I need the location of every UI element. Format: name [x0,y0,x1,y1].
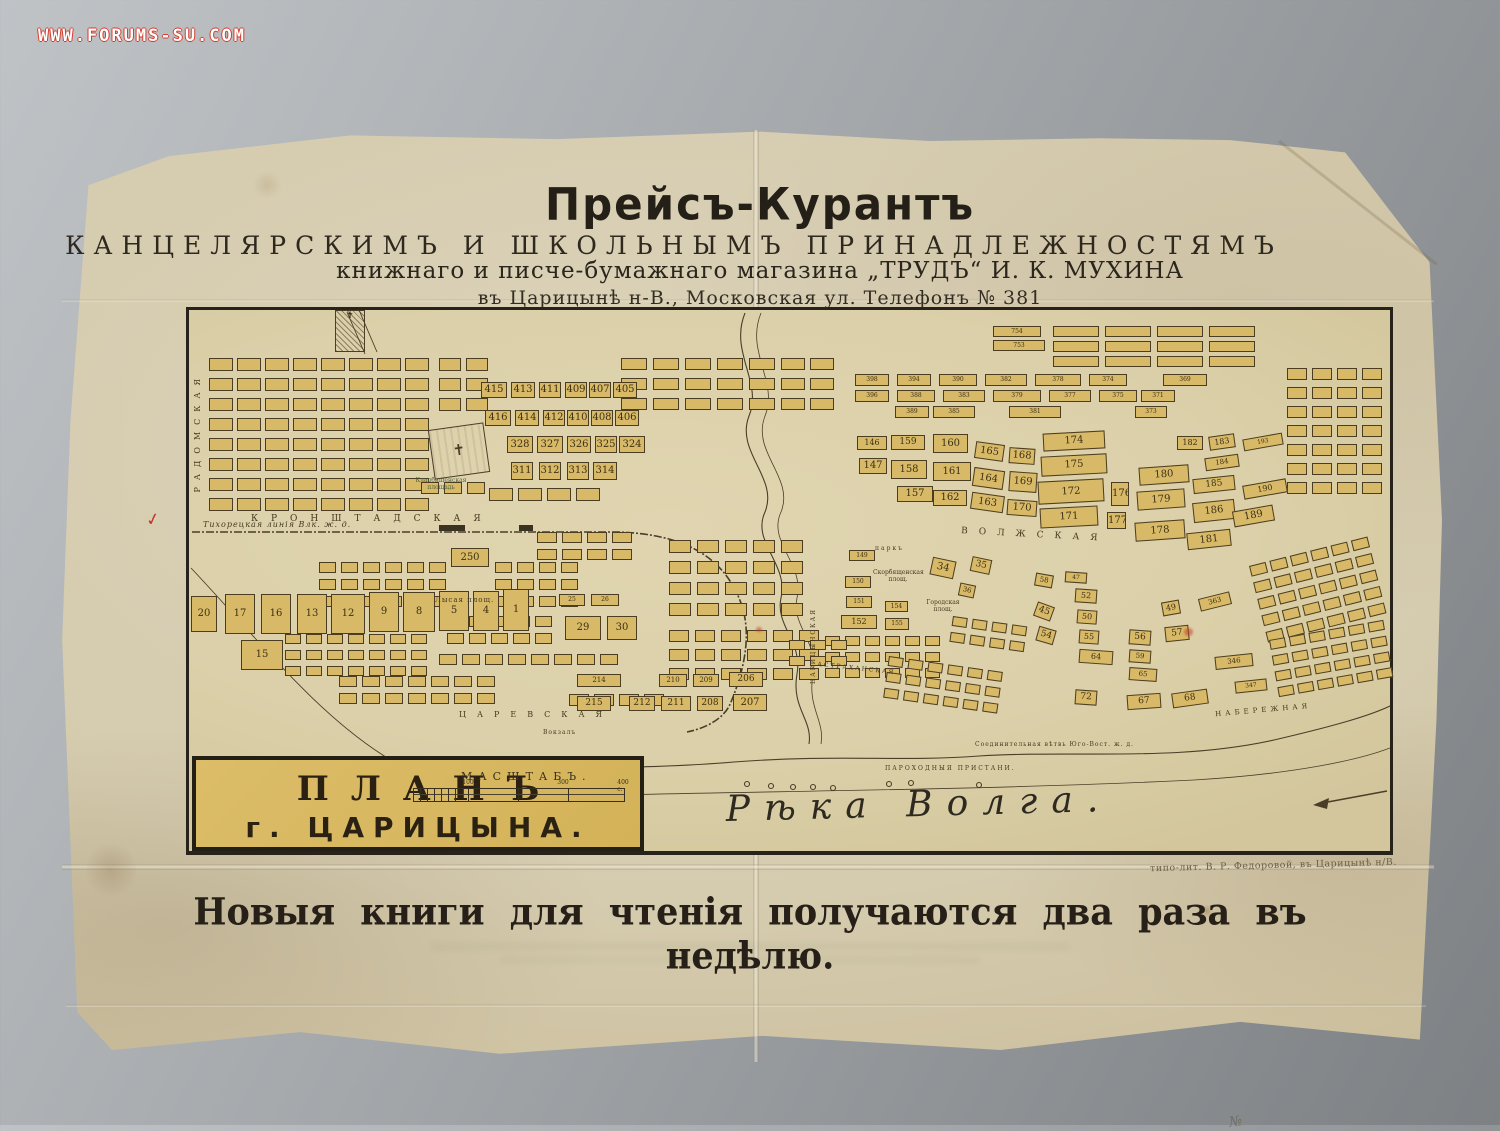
city-block: 186 [1192,499,1236,523]
city-block [576,488,600,501]
city-block [697,603,719,616]
city-block [321,358,345,371]
city-block [209,458,233,471]
city-block [831,640,847,650]
city-block [1287,368,1307,380]
city-block [721,649,741,661]
city-block: 58 [1034,573,1054,589]
city-block [1337,387,1357,399]
city-block: 161 [933,462,971,481]
city-block [1362,463,1382,475]
city-block [1318,580,1337,595]
city-block: 182 [1177,436,1203,450]
city-block [562,532,582,543]
city-block [321,438,345,451]
city-block [439,654,457,665]
city-block: 163 [970,492,1005,513]
city-block [749,358,775,370]
city-block [209,498,233,511]
street-label: Скорбященская площ. [873,570,923,584]
city-block [1157,356,1203,367]
city-block [348,634,364,644]
city-block [439,358,461,371]
street-label: ЦАРЕВСКАЯ [459,710,613,719]
city-block [477,693,495,704]
city-block [265,418,289,431]
city-block: 176 [1111,482,1129,506]
city-block [1337,425,1357,437]
city-block [1355,553,1374,568]
city-block [454,676,472,687]
city-block [753,603,775,616]
city-block [377,498,401,511]
city-block: 385 [933,406,975,418]
city-block: 373 [1135,406,1167,418]
city-block [1312,444,1332,456]
city-block [265,498,289,511]
city-block [952,616,968,628]
city-block [405,458,429,471]
city-block [943,696,959,708]
city-block [991,622,1007,634]
city-block [319,579,336,590]
city-block: 45 [1033,601,1055,621]
city-block [293,438,317,451]
scale-label: МАСШТАБЪ. [461,770,592,783]
city-block: 12 [331,594,365,634]
scale-tick [413,789,414,801]
city-block [653,398,679,410]
street-label: ЦАРИЦЫНСКАЯ [811,608,818,684]
city-block [377,478,401,491]
city-block: 152 [841,615,877,629]
city-block: 416 [485,410,511,426]
city-block [927,662,943,674]
city-block: 210 [659,674,687,687]
city-block [982,702,998,714]
city-block: 396 [855,390,889,402]
city-block [1312,368,1332,380]
header-subtitle-2: книжнаго и писче-бумажнаго магазина „ТРУ… [100,258,1420,284]
city-block [989,637,1005,649]
city-block [466,358,488,371]
city-block [1337,463,1357,475]
city-block: 379 [993,390,1041,402]
city-block [1053,341,1099,352]
city-block [411,634,427,644]
city-block: 363 [1198,591,1232,611]
city-block [669,603,691,616]
city-block [407,562,424,573]
city-block: 20 [191,596,217,632]
city-block [377,378,401,391]
city-block: 413 [511,382,535,398]
city-block [349,418,373,431]
city-block: 181 [1186,529,1232,551]
city-block [962,699,978,711]
city-block [539,596,556,607]
city-block: 50 [1077,609,1098,624]
city-block [237,378,261,391]
city-block [1275,669,1292,682]
city-block: 369 [1163,374,1207,386]
city-block: 158 [891,460,927,479]
street-label: Тихорецкая линія Влк. ж. д. [203,520,351,529]
city-block: 314 [593,462,617,480]
city-block: 155 [885,618,909,630]
city-block [685,398,711,410]
city-block [781,582,803,595]
city-block [1310,547,1329,562]
city-block [327,634,343,644]
cemetery-square: ✝ [428,422,490,479]
city-block: 68 [1171,689,1209,709]
city-block [385,693,403,704]
scale-tick [568,789,569,801]
city-block [1105,341,1151,352]
city-block [562,549,582,560]
city-block [965,683,981,695]
scale-tick [420,789,421,801]
city-block [923,693,939,705]
city-block [321,458,345,471]
city-block [349,458,373,471]
city-block [1335,558,1354,573]
street-label: ПАРОХОДНЫЯ ПРИСТАНИ. [885,766,1016,773]
city-block [306,634,322,644]
city-block: 414 [515,410,539,426]
city-block [1351,536,1370,551]
city-block [907,659,923,671]
city-block [348,666,364,676]
city-block [429,579,446,590]
city-block [717,358,743,370]
show-through-text [430,942,1070,951]
city-block [1353,655,1370,668]
city-block [587,532,607,543]
city-block: 26 [591,594,619,606]
city-block [385,579,402,590]
city-block: 36 [958,582,976,598]
city-block [697,561,719,574]
city-block: 408 [591,410,613,426]
city-block: 178 [1134,519,1185,541]
city-block [1348,623,1365,636]
city-block [539,562,556,573]
city-block [265,378,289,391]
city-block [349,478,373,491]
city-block [1376,667,1393,680]
city-block [362,693,380,704]
city-block [749,398,775,410]
city-block [1287,482,1307,494]
city-block [377,418,401,431]
city-block [865,652,880,662]
city-block [209,478,233,491]
city-block [454,693,472,704]
city-block: 16 [261,594,291,634]
city-block: 162 [933,490,967,506]
city-block: 168 [1008,447,1035,465]
city-block: 327 [537,436,563,453]
city-block [561,579,578,590]
city-block: 383 [943,390,985,402]
city-block [1362,406,1382,418]
red-ink-spot [1184,628,1193,636]
city-block: 381 [1009,406,1061,418]
city-block [1277,684,1294,697]
city-block [408,693,426,704]
city-block: 67 [1127,693,1162,710]
city-block: 215 [577,696,611,711]
city-block [535,616,552,627]
city-block [653,378,679,390]
city-block [1370,636,1387,649]
city-block [721,630,741,642]
city-block [1362,368,1382,380]
street-label: Городская площ. [925,600,961,614]
city-block [1317,678,1334,691]
city-block [1209,341,1255,352]
city-block [612,532,632,543]
city-block [781,603,803,616]
city-block: 390 [939,374,977,386]
city-block [405,378,429,391]
street-label: Вокзалъ [543,730,576,737]
city-block: 206 [729,672,763,687]
scale-tick [624,789,625,801]
city-block [1362,425,1382,437]
city-block [265,458,289,471]
city-block: 312 [539,462,561,480]
city-block: 753 [993,340,1045,351]
city-block: 15 [241,640,283,670]
city-block [753,561,775,574]
city-block: 164 [972,467,1005,490]
city-block [349,378,373,391]
city-block [1287,406,1307,418]
city-block [265,398,289,411]
city-block [883,688,899,700]
city-block [1278,590,1297,605]
street-label: Кладбищенская площадь [409,478,473,492]
city-block [1337,482,1357,494]
city-block [327,666,343,676]
city-block [905,636,920,646]
city-block [405,418,429,431]
city-block: 9 [369,592,399,632]
city-block: 382 [985,374,1027,386]
city-block: 1 [503,589,529,631]
city-block [306,650,322,660]
city-block: 64 [1079,649,1114,665]
street-label: ВОЛЖСКАЯ [961,526,1109,544]
city-block: 175 [1041,453,1108,476]
city-block [1312,463,1332,475]
city-block [612,549,632,560]
city-block [411,666,427,676]
city-block [561,562,578,573]
city-block [1273,573,1292,588]
city-block [469,633,486,644]
city-block [462,654,480,665]
city-block: 150 [845,576,871,588]
prison-building: ✝ [335,310,365,352]
city-block [293,378,317,391]
city-block [621,398,647,410]
city-block: 151 [846,596,872,608]
city-block [377,398,401,411]
city-block [1261,611,1280,626]
city-block: 378 [1035,374,1081,386]
city-block [1209,326,1255,337]
city-block [390,634,406,644]
city-block [285,666,301,676]
city-block: 179 [1136,488,1185,510]
scale-tick-value: 300 [557,779,568,786]
city-block: 208 [697,696,723,711]
city-block [321,498,345,511]
city-block [321,418,345,431]
city-block [1157,326,1203,337]
city-block: 159 [891,435,925,450]
city-block [1336,674,1353,687]
city-block [577,654,595,665]
city-block: 165 [974,441,1005,462]
city-block [1269,557,1288,572]
city-block [685,378,711,390]
street-label: НАБЕРЕЖНАЯ [1215,702,1312,718]
city-block [1337,444,1357,456]
city-block [669,561,691,574]
slogan-line: Новыя книги для чтенія получаются два ра… [150,890,1350,979]
city-block: 325 [595,436,617,453]
city-block [209,418,233,431]
city-block [753,540,775,553]
city-block: 388 [897,390,935,402]
city-block: 17 [225,594,255,634]
city-block [945,680,961,692]
city-block [1331,542,1350,557]
city-block: 190 [1242,478,1288,499]
city-block [987,670,1003,682]
city-block [369,634,385,644]
city-block: 160 [933,434,968,453]
city-block [1287,463,1307,475]
city-block: 13 [297,594,327,634]
city-block [377,358,401,371]
city-block [377,438,401,451]
city-block [773,668,793,680]
street-label: Лысая площ. [435,596,494,604]
city-block [789,656,805,666]
city-block: 154 [885,601,908,612]
city-block [1362,444,1382,456]
city-block [369,666,385,676]
city-block: 34 [929,557,956,580]
city-block [495,562,512,573]
header-subtitle-1: КАНЦЕЛЯРСКИМЪ И ШКОЛЬНЫМЪ ПРИНАДЛЕЖНОСТЯ… [14,231,1334,260]
city-block [888,656,904,668]
city-block [547,488,571,501]
city-block: 193 [1242,433,1283,452]
city-block [1356,671,1373,684]
city-block [1253,578,1272,593]
city-block [237,358,261,371]
city-block [439,398,461,411]
city-block [390,666,406,676]
city-block [237,438,261,451]
city-block [411,650,427,660]
header-address-line: въ Царицынѣ н-В., Московская ул. Телефон… [100,287,1420,309]
city-block [695,630,715,642]
city-block: 55 [1079,629,1100,644]
city-block: 170 [1006,499,1037,517]
city-block [319,562,336,573]
city-block [485,654,503,665]
city-block [390,650,406,660]
city-block [1287,387,1307,399]
city-block [447,633,464,644]
city-block: 47 [1065,571,1088,584]
city-block [537,532,557,543]
city-block [535,633,552,644]
city-block [408,676,426,687]
city-block [377,458,401,471]
city-block [339,676,357,687]
city-block: 30 [607,616,637,640]
city-block [810,358,834,370]
city-block [554,654,572,665]
city-block: 371 [1141,390,1175,402]
city-block [1337,406,1357,418]
city-block: 147 [859,458,887,474]
city-block [925,677,941,689]
city-block: 212 [629,696,655,711]
scale-tick [448,789,449,801]
show-through-text [500,956,980,964]
cross-icon: ✝ [346,311,354,321]
scale-tick [441,789,442,801]
city-block [1249,562,1268,577]
city-block [293,498,317,511]
city-block: 754 [993,326,1041,337]
city-block: 209 [693,674,719,687]
city-block [669,540,691,553]
city-block [385,562,402,573]
city-block: 29 [565,616,601,640]
city-block: 412 [543,410,565,426]
city-block [237,458,261,471]
city-block [865,636,880,646]
city-block [1347,608,1366,623]
city-block [717,378,743,390]
city-block [1312,482,1332,494]
city-block [885,636,900,646]
city-block [1359,569,1378,584]
city-block [489,488,513,501]
city-block [947,664,963,676]
city-block [903,690,919,702]
city-block [1367,602,1386,617]
city-block [669,582,691,595]
city-block [209,378,233,391]
city-block [1314,563,1333,578]
city-block: 409 [565,382,587,398]
city-block [925,636,940,646]
city-block: 313 [567,462,589,480]
city-block [1312,425,1332,437]
